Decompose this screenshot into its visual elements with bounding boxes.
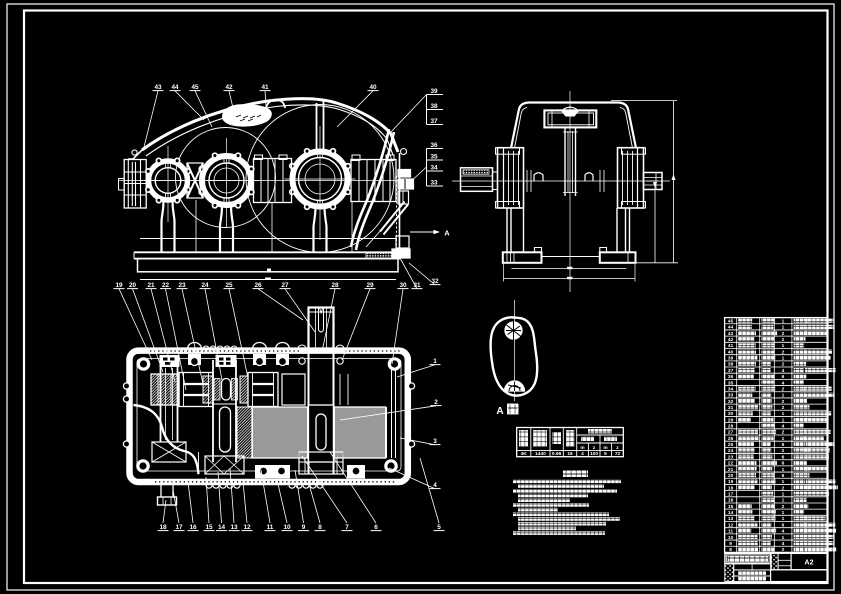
svg-text:43: 43 (728, 331, 734, 337)
svg-text:2: 2 (782, 405, 785, 411)
svg-text:4: 4 (782, 380, 785, 386)
svg-text:2: 2 (782, 337, 785, 343)
svg-text:14: 14 (728, 510, 734, 516)
svg-text:35: 35 (430, 154, 438, 161)
svg-text:38: 38 (430, 103, 438, 110)
svg-text:7: 7 (345, 524, 349, 531)
svg-text:20: 20 (728, 473, 734, 479)
svg-text:45: 45 (191, 84, 199, 91)
svg-text:29: 29 (366, 282, 374, 289)
svg-text:1440: 1440 (535, 451, 546, 457)
svg-text:30: 30 (399, 282, 407, 289)
svg-text:15: 15 (205, 524, 213, 531)
svg-text:28: 28 (331, 282, 339, 289)
svg-text:29: 29 (728, 417, 734, 423)
svg-text:1: 1 (782, 479, 785, 485)
svg-text:6: 6 (782, 522, 785, 528)
svg-text:24: 24 (728, 448, 734, 454)
svg-text:5: 5 (437, 524, 441, 531)
svg-text:1: 1 (782, 516, 785, 522)
svg-text:1: 1 (782, 436, 785, 442)
svg-text:72: 72 (615, 451, 621, 457)
svg-text:1: 1 (782, 356, 785, 362)
svg-text:43: 43 (154, 84, 162, 91)
svg-text:37: 37 (430, 118, 438, 125)
svg-text:3: 3 (433, 438, 437, 445)
svg-text:4K: 4K (521, 451, 528, 457)
svg-text:2: 2 (782, 387, 785, 393)
svg-text:1: 1 (782, 393, 785, 399)
svg-text:11: 11 (728, 529, 733, 535)
svg-text:37: 37 (728, 368, 734, 374)
svg-text:30: 30 (728, 411, 734, 417)
svg-text:1: 1 (782, 498, 785, 504)
svg-text:32: 32 (431, 278, 439, 285)
svg-text:2: 2 (434, 399, 438, 406)
svg-text:40: 40 (728, 349, 734, 355)
svg-text:22: 22 (728, 461, 734, 467)
svg-text:11: 11 (267, 524, 274, 531)
svg-text:23: 23 (728, 454, 734, 460)
svg-text:22: 22 (162, 282, 170, 289)
svg-text:2: 2 (782, 362, 785, 368)
svg-text:42: 42 (225, 84, 233, 91)
svg-text:17: 17 (175, 524, 183, 531)
svg-text:21: 21 (147, 282, 155, 289)
svg-text:20: 20 (129, 282, 137, 289)
svg-text:28: 28 (728, 424, 734, 430)
svg-text:15: 15 (728, 504, 734, 510)
svg-text:31: 31 (413, 282, 421, 289)
svg-text:4: 4 (782, 368, 785, 374)
svg-text:4: 4 (782, 424, 785, 430)
svg-text:2: 2 (782, 349, 785, 355)
svg-text:1: 1 (782, 325, 785, 331)
svg-text:2: 2 (782, 430, 785, 436)
svg-text:31: 31 (728, 405, 734, 411)
svg-text:100: 100 (590, 451, 598, 457)
svg-text:2: 2 (782, 547, 785, 553)
svg-text:2: 2 (782, 448, 785, 454)
svg-text:1: 1 (782, 343, 785, 349)
svg-text:9: 9 (729, 541, 732, 547)
svg-text:6: 6 (782, 442, 785, 448)
svg-text:2: 2 (782, 399, 785, 405)
svg-text:39: 39 (430, 88, 438, 95)
svg-text:4: 4 (782, 529, 785, 535)
svg-text:4: 4 (581, 451, 584, 457)
svg-text:14: 14 (218, 524, 226, 531)
svg-text:19: 19 (728, 479, 734, 485)
svg-text:19: 19 (115, 282, 123, 289)
svg-text:1: 1 (782, 467, 785, 473)
svg-text:1: 1 (782, 319, 785, 325)
svg-text:10: 10 (728, 535, 734, 541)
svg-text:1: 1 (782, 411, 785, 417)
svg-text:34: 34 (728, 387, 734, 393)
svg-text:10: 10 (283, 524, 291, 531)
svg-text:16: 16 (567, 451, 573, 457)
svg-text:A: A (444, 229, 450, 238)
svg-text:45: 45 (728, 319, 734, 325)
svg-text:8: 8 (729, 547, 732, 553)
svg-text:25: 25 (728, 442, 734, 448)
svg-text:m: m (603, 446, 607, 451)
svg-text:24: 24 (201, 282, 209, 289)
svg-text:44: 44 (728, 325, 734, 331)
svg-text:18: 18 (159, 524, 167, 531)
svg-text:18: 18 (728, 485, 734, 491)
svg-text:13: 13 (230, 524, 238, 531)
svg-text:1: 1 (433, 358, 437, 365)
svg-text:40: 40 (369, 84, 377, 91)
svg-text:41: 41 (728, 343, 734, 349)
svg-text:A: A (496, 406, 503, 417)
svg-text:2: 2 (782, 504, 785, 510)
svg-text:27: 27 (281, 282, 289, 289)
svg-text:26: 26 (728, 436, 734, 442)
svg-text:34: 34 (430, 165, 438, 172)
svg-text:2: 2 (782, 485, 785, 491)
svg-text:1: 1 (782, 510, 785, 516)
svg-text:35: 35 (728, 380, 734, 386)
svg-text:6: 6 (782, 473, 785, 479)
svg-text:6: 6 (782, 461, 785, 467)
svg-text:36: 36 (728, 374, 734, 380)
svg-text:39: 39 (728, 356, 734, 362)
svg-text:21: 21 (728, 467, 734, 473)
svg-text:23: 23 (178, 282, 186, 289)
svg-text:26: 26 (254, 282, 262, 289)
svg-text:33: 33 (728, 393, 734, 399)
svg-text:1: 1 (782, 417, 785, 423)
svg-text:6: 6 (782, 454, 785, 460)
svg-text:16: 16 (189, 524, 197, 531)
svg-text:4: 4 (782, 541, 785, 547)
svg-text:32: 32 (728, 399, 734, 405)
svg-text:27: 27 (728, 430, 734, 436)
svg-text:44: 44 (171, 84, 179, 91)
svg-text:41: 41 (261, 84, 269, 91)
svg-text:5: 5 (604, 451, 607, 457)
svg-text:9: 9 (302, 524, 306, 531)
svg-text:1: 1 (782, 492, 785, 498)
svg-text:36: 36 (430, 142, 438, 149)
svg-text:2: 2 (782, 331, 785, 337)
svg-text:38: 38 (728, 362, 734, 368)
svg-text:16: 16 (728, 498, 734, 504)
svg-text:1: 1 (782, 535, 785, 541)
svg-text:13: 13 (728, 516, 734, 522)
svg-text:8: 8 (318, 524, 322, 531)
svg-text:m: m (580, 446, 584, 451)
svg-text:A2: A2 (805, 560, 814, 567)
svg-text:6: 6 (782, 374, 785, 380)
svg-text:12: 12 (243, 524, 251, 531)
svg-text:6: 6 (374, 524, 378, 531)
svg-text:0.96: 0.96 (552, 451, 562, 457)
svg-text:33: 33 (430, 180, 438, 187)
svg-text:17: 17 (728, 492, 734, 498)
svg-text:12: 12 (728, 522, 734, 528)
svg-text:42: 42 (728, 337, 734, 343)
svg-text:25: 25 (225, 282, 233, 289)
